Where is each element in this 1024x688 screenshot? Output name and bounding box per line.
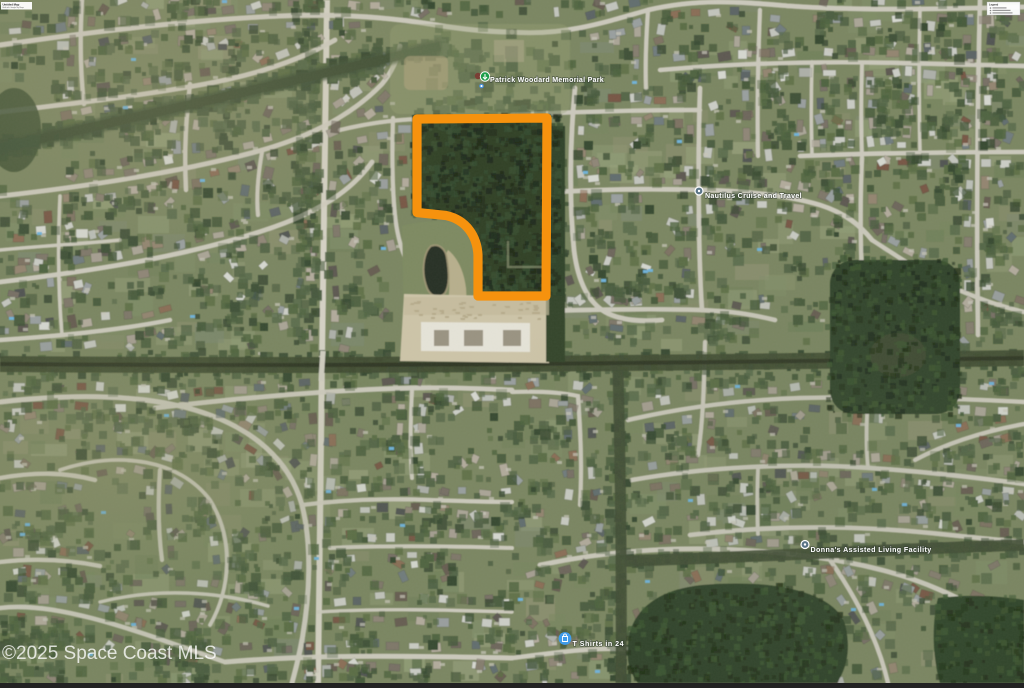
svg-text:Built with Google My Maps: Built with Google My Maps [3, 6, 24, 9]
svg-text:©2025 Space Coast MLS: ©2025 Space Coast MLS [2, 643, 217, 664]
svg-text:Nautilus Cruise and Travel: Nautilus Cruise and Travel [705, 192, 802, 200]
svg-text:T Shirts in 24: T Shirts in 24 [573, 640, 625, 648]
svg-text:Patrick Woodard Memorial Park: Patrick Woodard Memorial Park [490, 76, 604, 84]
svg-text:Untitled Map: Untitled Map [3, 2, 20, 6]
svg-text:Donna's Assisted Living Facili: Donna's Assisted Living Facility [811, 546, 932, 554]
svg-text:Legend: Legend [989, 3, 999, 7]
